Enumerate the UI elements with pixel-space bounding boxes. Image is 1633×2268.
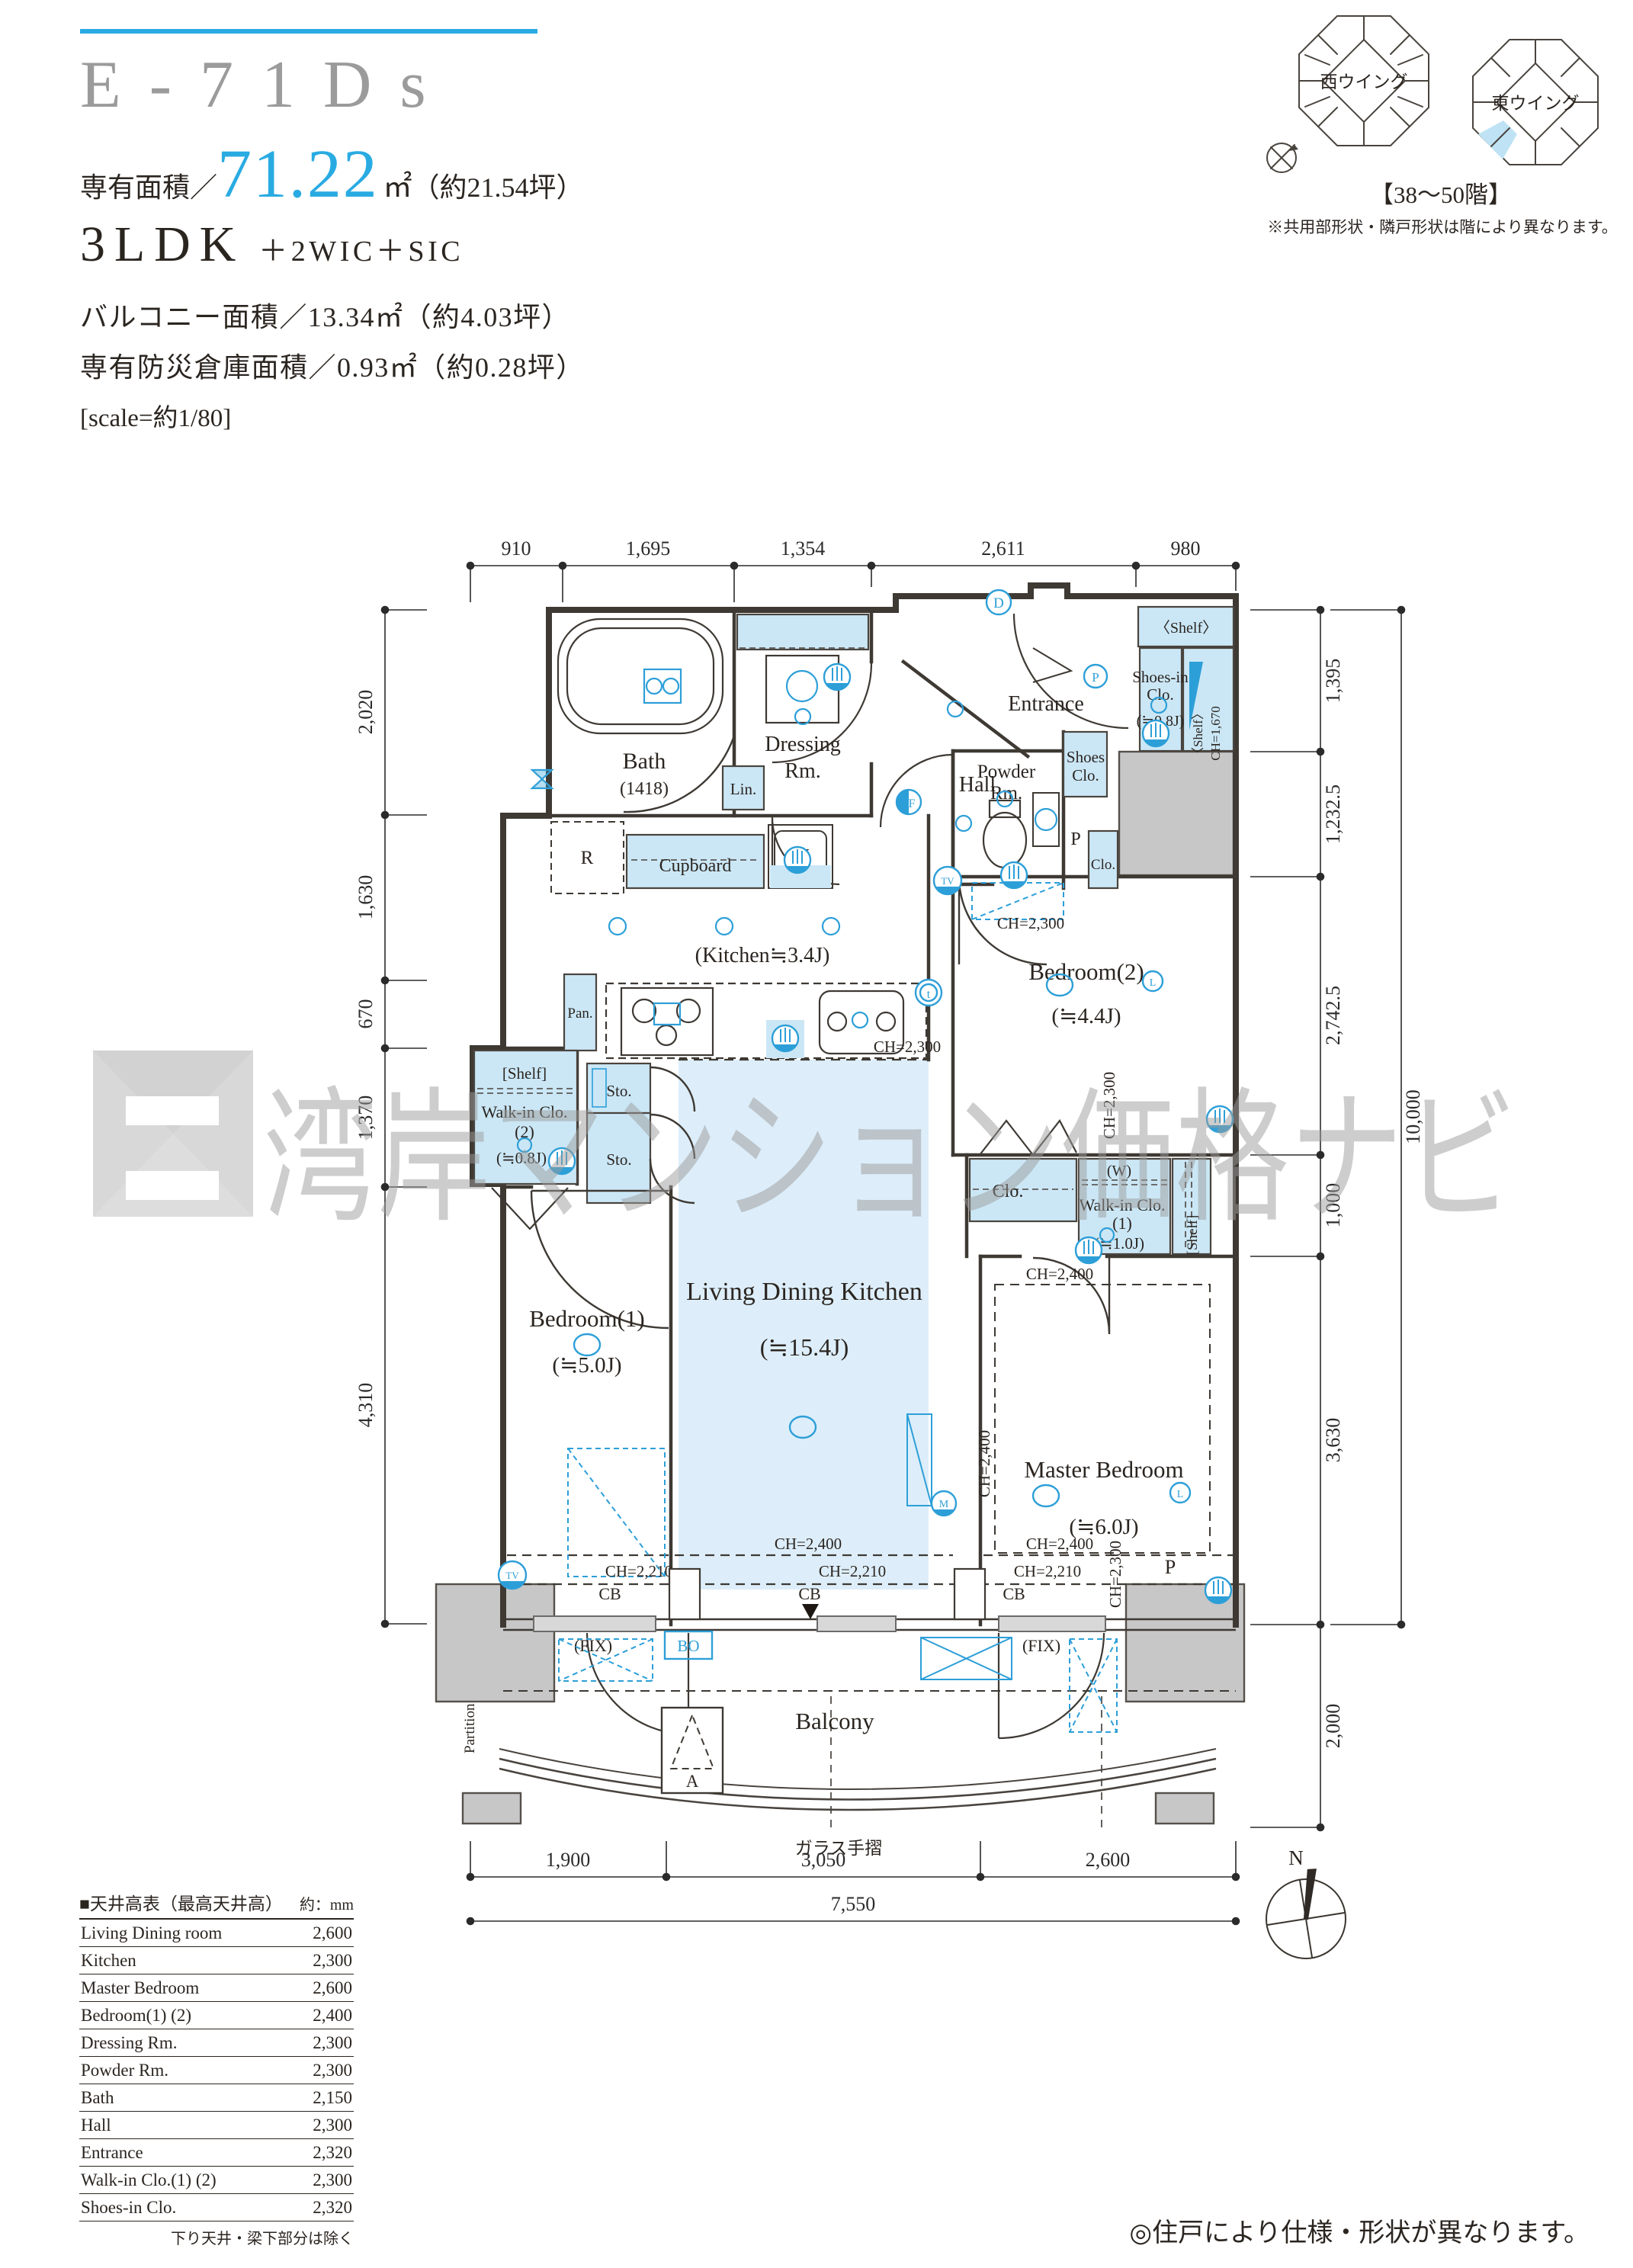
svg-text:L: L bbox=[1177, 1489, 1184, 1500]
table-title: ■天井高表（最高天井高） bbox=[79, 1889, 283, 1915]
top-dim-labels: 910 1,695 1,354 2,611 980 bbox=[502, 537, 1201, 560]
row-label: Kitchen bbox=[81, 1951, 136, 1971]
table-footnote: 下り天井・梁下部分は除く bbox=[79, 2221, 354, 2248]
table-unit: 約：mm bbox=[300, 1892, 354, 1914]
ceiling-height-table: ■天井高表（最高天井高） 約：mm Living Dining room2,60… bbox=[79, 1889, 354, 2248]
lin-label: Lin. bbox=[730, 780, 756, 798]
svg-text:1,395: 1,395 bbox=[1322, 659, 1344, 704]
bo-label: BO bbox=[677, 1637, 699, 1655]
ldk-label: Living Dining Kitchen bbox=[686, 1278, 922, 1306]
ldk-size: (≒15.4J) bbox=[760, 1333, 849, 1361]
table-row: Walk-in Clo.(1) (2)2,300 bbox=[79, 2167, 354, 2194]
svg-text:CH=2,210: CH=2,210 bbox=[819, 1562, 886, 1580]
balcony-label: Balcony bbox=[795, 1708, 874, 1734]
bedroom2-size: (≒4.4J) bbox=[1051, 1004, 1121, 1028]
pad-right bbox=[1156, 1793, 1214, 1824]
left-dim-labels: 2,020 1,630 670 1,370 4,310 bbox=[355, 690, 377, 1428]
svg-text:980: 980 bbox=[1171, 537, 1201, 560]
hatch-label: A bbox=[686, 1772, 699, 1791]
svg-text:CH=2,400: CH=2,400 bbox=[1026, 1265, 1093, 1283]
locator-note: ※共用部形状・隣戸形状は階により異なります。 bbox=[1267, 218, 1617, 236]
svg-text:1,232.5: 1,232.5 bbox=[1322, 784, 1344, 844]
row-value: 2,600 bbox=[313, 1978, 352, 1998]
row-label: Powder Rm. bbox=[81, 2061, 168, 2080]
bath-label: Bath bbox=[623, 749, 666, 774]
north-label: N bbox=[1288, 1846, 1304, 1869]
north-compass: N bbox=[1261, 1846, 1352, 1964]
svg-text:1,630: 1,630 bbox=[355, 875, 377, 920]
bedroom2-label: Bedroom(2) bbox=[1028, 958, 1144, 985]
svg-text:1,900: 1,900 bbox=[546, 1849, 591, 1871]
p-label-hall: P bbox=[1070, 829, 1080, 849]
row-label: Shoes-in Clo. bbox=[81, 2198, 176, 2218]
row-value: 2,300 bbox=[313, 2061, 352, 2080]
bedroom1-label: Bedroom(1) bbox=[529, 1305, 645, 1332]
building-locator: 西ウイング 東ウイング bbox=[1267, 16, 1618, 236]
sic-label-2: Clo. bbox=[1147, 685, 1174, 704]
window-sashes bbox=[534, 1616, 1105, 1631]
row-label: Entrance bbox=[81, 2143, 143, 2163]
shaft-block bbox=[1119, 752, 1234, 875]
svg-text:CH=2,400: CH=2,400 bbox=[975, 1430, 993, 1497]
table-header: ■天井高表（最高天井高） 約：mm bbox=[79, 1889, 354, 1920]
svg-text:CH=2,400: CH=2,400 bbox=[1026, 1535, 1093, 1553]
row-label: Bedroom(1) (2) bbox=[81, 2006, 191, 2026]
row-label: Bath bbox=[81, 2088, 114, 2108]
svg-text:2,600: 2,600 bbox=[1086, 1849, 1131, 1871]
marker-f: F bbox=[897, 790, 921, 814]
east-wing-label: 東ウイング bbox=[1492, 94, 1580, 113]
svg-text:1,354: 1,354 bbox=[781, 537, 826, 560]
svg-text:CH=2,210: CH=2,210 bbox=[1014, 1562, 1081, 1580]
svg-text:〈Shelf〉: 〈Shelf〉 bbox=[1191, 707, 1205, 760]
row-value: 2,320 bbox=[313, 2198, 352, 2218]
table-row: Hall2,300 bbox=[79, 2112, 354, 2139]
bath-size: (1418) bbox=[620, 779, 669, 799]
cb-triangle bbox=[802, 1604, 819, 1619]
table-row: Dressing Rm.2,300 bbox=[79, 2029, 354, 2057]
svg-text:670: 670 bbox=[355, 999, 377, 1029]
svg-text:CH=2,300: CH=2,300 bbox=[1106, 1541, 1124, 1608]
svg-text:2,611: 2,611 bbox=[981, 537, 1025, 560]
svg-text:3,630: 3,630 bbox=[1322, 1418, 1344, 1463]
row-value: 2,320 bbox=[313, 2143, 352, 2163]
dressing-label-1: Dressing bbox=[765, 733, 841, 756]
table-row: Master Bedroom2,600 bbox=[79, 1974, 354, 2002]
svg-text:TV: TV bbox=[941, 875, 954, 887]
watermark-text: 湾岸マンション価格ナビ bbox=[263, 1080, 1517, 1240]
shoes-clo-label-2: Clo. bbox=[1072, 766, 1099, 784]
kitchen-label: (Kitchen≒3.4J) bbox=[695, 944, 830, 967]
table-row: Living Dining room2,600 bbox=[79, 1920, 354, 1947]
table-row: Entrance2,320 bbox=[79, 2139, 354, 2167]
fix-labels: (FIX) (FIX) bbox=[574, 1636, 1060, 1655]
cupboard-label: Cupboard bbox=[659, 856, 732, 876]
marker-tv-bedroom1: TV bbox=[499, 1561, 526, 1589]
table-row: Powder Rm.2,300 bbox=[79, 2057, 354, 2084]
west-wing-label: 西ウイング bbox=[1320, 72, 1408, 91]
row-value: 2,600 bbox=[313, 1923, 352, 1943]
row-value: 2,300 bbox=[313, 2033, 352, 2053]
marker-p: P bbox=[1084, 665, 1107, 688]
watermark-logo bbox=[93, 1051, 253, 1217]
table-row: Shoes-in Clo.2,320 bbox=[79, 2194, 354, 2221]
svg-text:D: D bbox=[993, 595, 1004, 611]
shoes-clo-label-1: Shoes bbox=[1067, 748, 1105, 766]
svg-text:P: P bbox=[1092, 670, 1099, 685]
balcony-area: A Balcony ガラス手摺 Partition (FIX) (FIX) BO bbox=[462, 1631, 1236, 1858]
pillar-left bbox=[436, 1584, 554, 1702]
table-row: Bedroom(1) (2)2,400 bbox=[79, 2002, 354, 2029]
floorplan-page: E-71Ds 専有面積／ 71.22 ㎡ （約21.54坪） 3LDK ＋2WI… bbox=[0, 0, 1633, 2268]
marker-t: t bbox=[916, 980, 942, 1006]
bottom-dim-labels: 1,900 3,050 2,600 bbox=[546, 1849, 1131, 1871]
bottom-total-label: 7,550 bbox=[831, 1893, 876, 1915]
svg-text:2,020: 2,020 bbox=[355, 690, 377, 735]
dressing-label-2: Rm. bbox=[784, 759, 820, 783]
mini-compass-icon bbox=[1267, 143, 1298, 172]
svg-text:2,742.5: 2,742.5 bbox=[1322, 986, 1344, 1045]
powder-label-2: Rm. bbox=[990, 783, 1022, 804]
svg-text:t: t bbox=[927, 988, 931, 1001]
marker-d: D bbox=[987, 590, 1011, 614]
row-label: Hall bbox=[81, 2116, 111, 2135]
marker-l-bedroom2: L bbox=[1143, 971, 1163, 991]
row-label: Master Bedroom bbox=[81, 1978, 199, 1998]
svg-text:CB: CB bbox=[1003, 1584, 1025, 1603]
svg-text:M: M bbox=[939, 1499, 949, 1510]
svg-text:2,000: 2,000 bbox=[1322, 1704, 1344, 1749]
balcony-rail bbox=[499, 1749, 1216, 1810]
row-label: Walk-in Clo.(1) (2) bbox=[81, 2170, 217, 2190]
row-label: Living Dining room bbox=[81, 1923, 222, 1943]
west-wing-diagram: 西ウイング bbox=[1299, 16, 1429, 146]
marker-l-master: L bbox=[1170, 1483, 1190, 1503]
svg-text:910: 910 bbox=[502, 537, 531, 560]
svg-text:TV: TV bbox=[505, 1570, 519, 1581]
svg-text:CH=1,670: CH=1,670 bbox=[1208, 706, 1223, 760]
sic-label-1: Shoes-in bbox=[1132, 668, 1189, 686]
svg-text:(FIX): (FIX) bbox=[1022, 1636, 1060, 1655]
svg-text:CH=2,400: CH=2,400 bbox=[775, 1535, 842, 1553]
svg-text:4,310: 4,310 bbox=[355, 1383, 377, 1428]
sic-shelf-label: 〈Shelf〉 bbox=[1155, 620, 1218, 637]
east-wing-diagram: 東ウイング bbox=[1473, 40, 1598, 165]
svg-text:P: P bbox=[1165, 1556, 1176, 1578]
row-value: 2,150 bbox=[313, 2088, 352, 2108]
row-value: 2,300 bbox=[313, 2116, 352, 2135]
pad-left bbox=[463, 1793, 521, 1824]
row-value: 2,300 bbox=[313, 2170, 352, 2190]
bedroom1-size: (≒5.0J) bbox=[552, 1353, 621, 1378]
row-value: 2,400 bbox=[313, 2006, 352, 2026]
svg-text:CB: CB bbox=[598, 1584, 621, 1603]
svg-text:F: F bbox=[909, 797, 916, 810]
entrance-label: Entrance bbox=[1008, 692, 1084, 716]
svg-text:CH=2,210: CH=2,210 bbox=[605, 1562, 672, 1580]
marker-tv-bedroom2: TV bbox=[934, 867, 961, 894]
svg-text:1,695: 1,695 bbox=[626, 537, 671, 560]
pillar-right bbox=[1126, 1584, 1244, 1702]
master-label: Master Bedroom bbox=[1024, 1456, 1183, 1483]
table-row: Kitchen2,300 bbox=[79, 1947, 354, 1974]
svg-text:CH=2,300: CH=2,300 bbox=[874, 1038, 941, 1056]
clo-label-hall: Clo. bbox=[1091, 857, 1115, 873]
r-label: R bbox=[581, 848, 594, 868]
svg-text:CB: CB bbox=[798, 1584, 820, 1603]
table-row: Bath2,150 bbox=[79, 2084, 354, 2112]
pan-label: Pan. bbox=[567, 1006, 592, 1022]
footer-note: ◎住戸により仕様・形状が異なります。 bbox=[1129, 2218, 1590, 2247]
svg-text:CH=2,300: CH=2,300 bbox=[997, 914, 1064, 932]
svg-text:L: L bbox=[1150, 977, 1157, 989]
partition-label: Partition bbox=[462, 1703, 478, 1753]
powder-label-1: Powder bbox=[977, 762, 1036, 782]
marker-m: M bbox=[932, 1491, 956, 1516]
row-value: 2,300 bbox=[313, 1951, 352, 1971]
floor-range-label: 【38〜50階】 bbox=[1370, 181, 1512, 208]
row-label: Dressing Rm. bbox=[81, 2033, 178, 2053]
svg-text:3,050: 3,050 bbox=[801, 1849, 846, 1871]
